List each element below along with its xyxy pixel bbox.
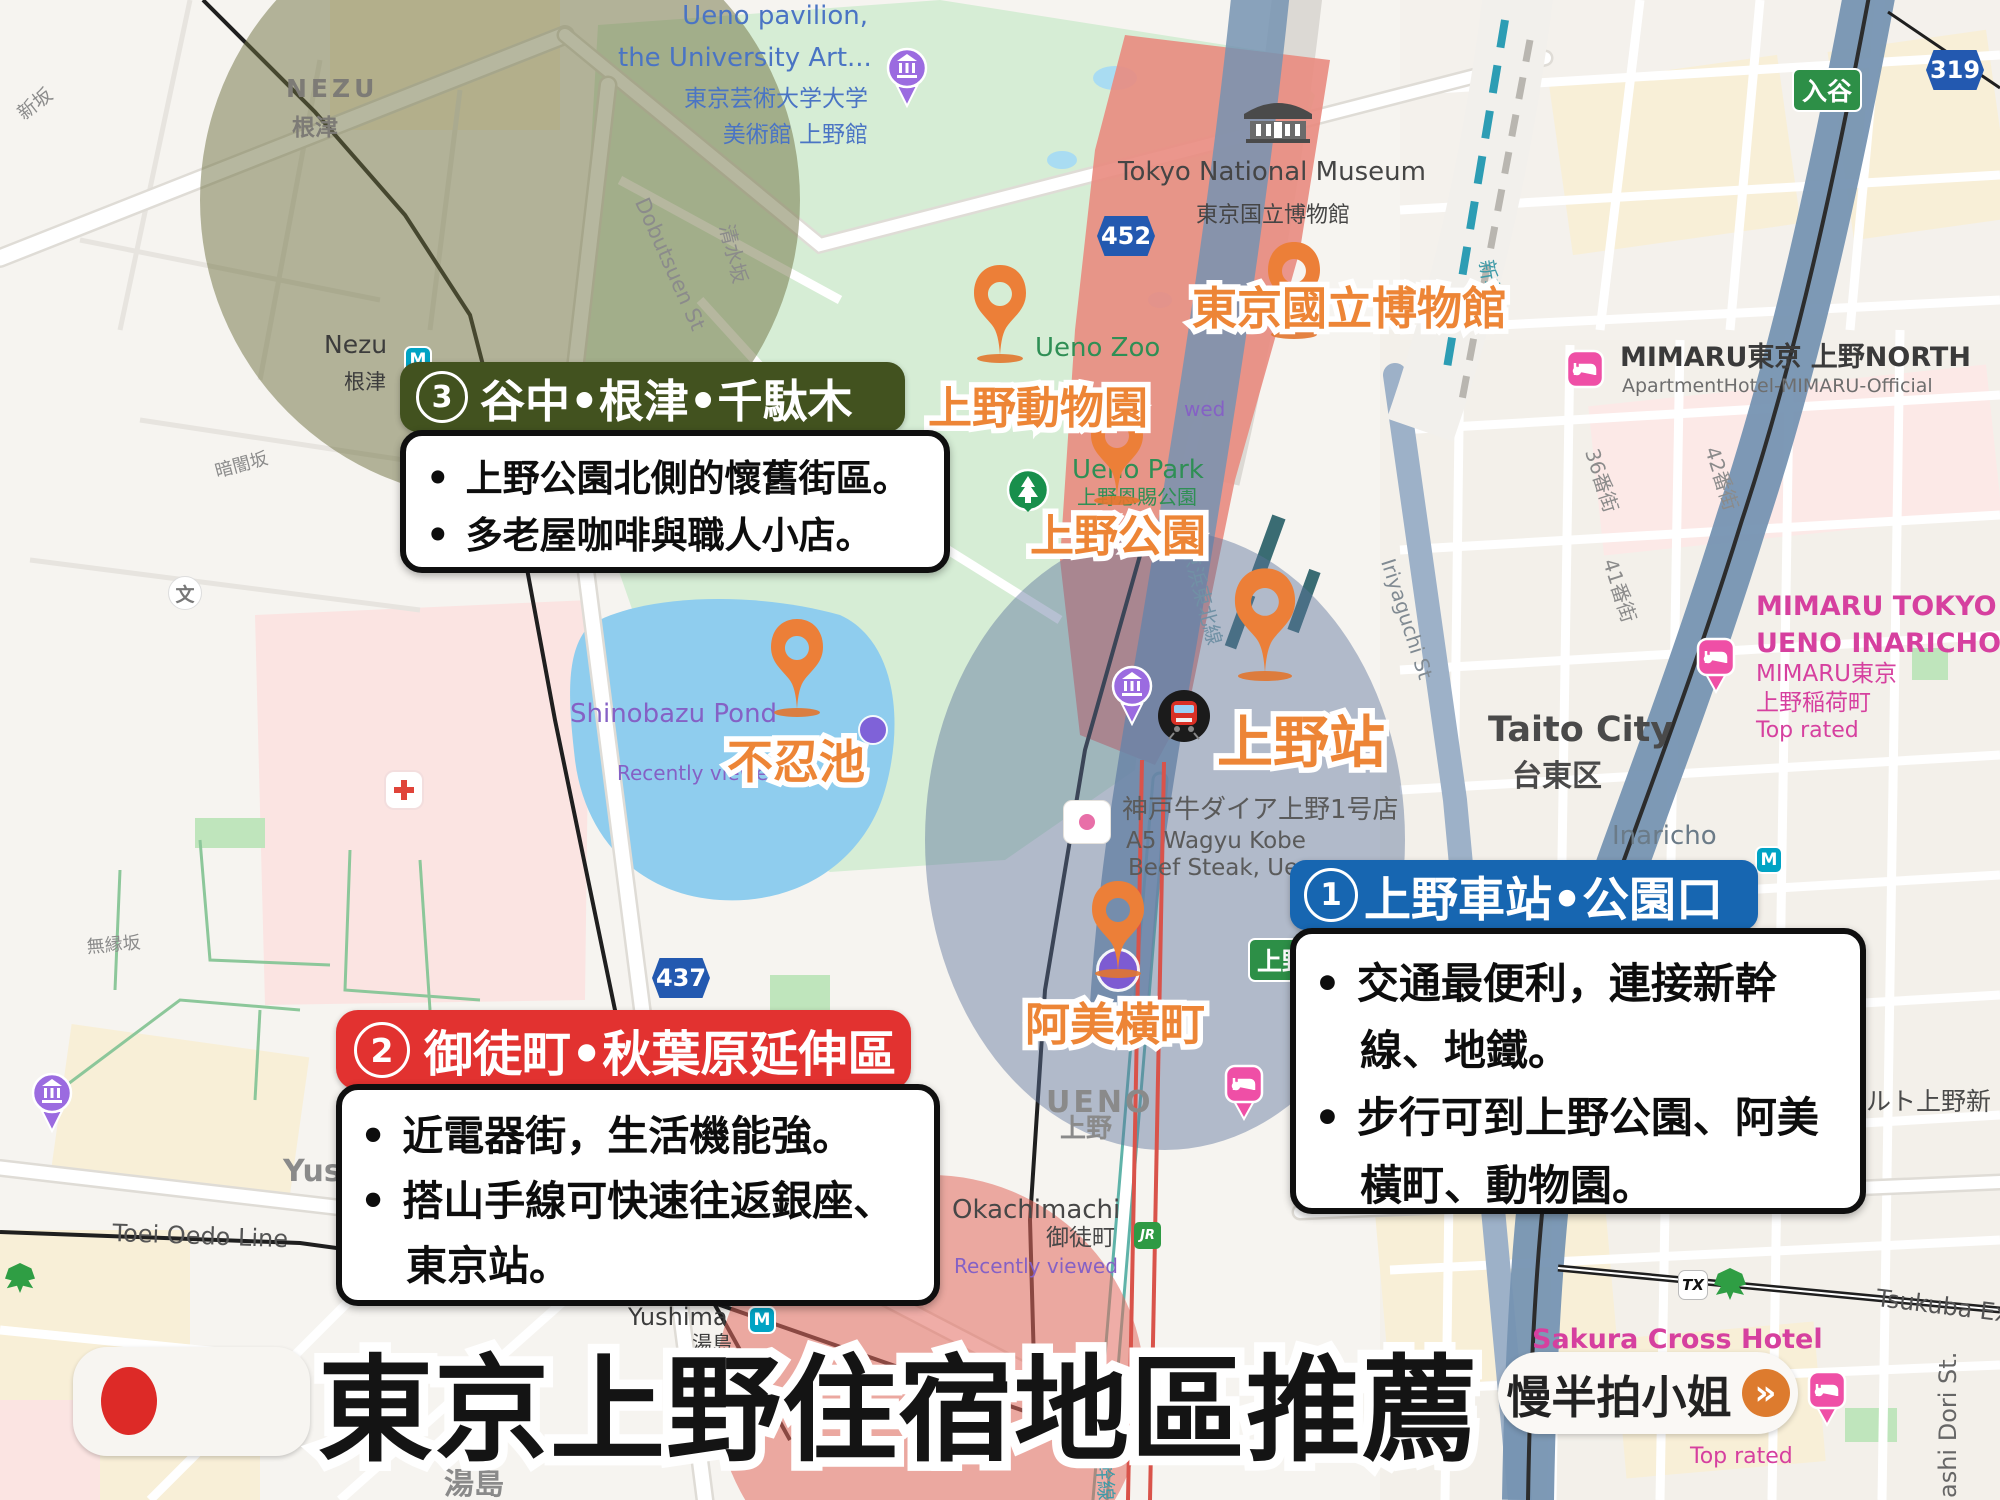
- poi-label-pavilion-3[interactable]: 東京芸術大学大学: [618, 86, 868, 112]
- museum-pin-icon[interactable]: [1109, 664, 1155, 726]
- chevron-right-icon: »: [1742, 1369, 1790, 1417]
- map-pin-shinobazu-pond[interactable]: [767, 617, 827, 716]
- info-box2-body: 近電器街，生活機能強。 搭山手線可快速往返銀座、東京站。: [336, 1084, 940, 1306]
- museum-pin-icon[interactable]: [29, 1071, 75, 1133]
- poi-label-sakura-rated: Top rated: [1690, 1444, 1793, 1469]
- info-box1-title: 上野車站•公園口: [1364, 861, 1723, 930]
- info-box1-header: 1 上野車站•公園口: [1290, 860, 1758, 930]
- area-label-taito-jp: 台東区: [1512, 760, 1602, 795]
- badge-1: 1: [1304, 868, 1358, 922]
- poi-label-tnm-en[interactable]: Tokyo National Museum: [1118, 158, 1426, 188]
- poi-label-pavilion-4[interactable]: 美術館 上野館: [618, 122, 868, 148]
- badge-2: 2: [354, 1022, 410, 1078]
- museum-pin-icon[interactable]: [884, 46, 930, 108]
- watermark-pill: 慢半拍小姐 »: [1498, 1352, 1798, 1434]
- poi-label-mimaru-north[interactable]: MIMARU東京 上野NORTH: [1620, 342, 1971, 373]
- info-box1-bullet: 交通最便利，連接新幹線、地鐵。: [1314, 950, 1842, 1084]
- poi-label-wagyu-1[interactable]: 神戸牛ダイア上野1号店: [1122, 796, 1399, 826]
- route-shield-319: 319: [1926, 50, 1984, 90]
- poi-label-mimaru-inaricho-4: 上野稲荷町: [1756, 690, 1871, 716]
- tx-icon[interactable]: TX: [1678, 1270, 1708, 1300]
- highlight-label-ameyoko[interactable]: 阿美橫町: [1025, 988, 1205, 1053]
- info-box2-title: 御徒町•秋葉原延伸區: [424, 1015, 896, 1086]
- highlight-label-park[interactable]: 上野公園: [1030, 500, 1206, 564]
- area-label-taito-en: Taito City: [1488, 710, 1673, 750]
- hotel-pin-icon[interactable]: [1805, 1369, 1849, 1427]
- map-pin-ameyoko[interactable]: [1088, 879, 1148, 978]
- poi-label-sakura-hotel[interactable]: Sakura Cross Hotel: [1532, 1324, 1823, 1355]
- map-pin-ueno-zoo[interactable]: [970, 263, 1030, 362]
- info-box3-bullet: 多老屋咖啡與職人小店。: [426, 507, 924, 564]
- poi-label-mimaru-inaricho-1[interactable]: MIMARU TOKYO: [1756, 591, 1997, 622]
- info-box3-header: 3 谷中•根津•千駄木: [400, 362, 905, 432]
- map-pin-ueno-station[interactable]: [1229, 566, 1301, 680]
- poi-label-pavilion-2[interactable]: the University Art...: [618, 44, 868, 74]
- info-box3-body: 上野公園北側的懷舊街區。 多老屋咖啡與職人小店。: [400, 430, 950, 573]
- poi-label-mimaru-inaricho-3: MIMARU東京: [1756, 661, 1897, 687]
- highlight-label-pond[interactable]: 不忍池: [727, 726, 865, 792]
- japan-flag-badge: [73, 1347, 310, 1456]
- poi-label-wagyu-3: Beef Steak, Uen: [1128, 855, 1313, 881]
- poi-label-tnm-jp[interactable]: 東京国立博物館: [1196, 203, 1350, 228]
- page-title: 東京上野住宿地區推薦: [318, 1318, 1478, 1484]
- hotel-icon[interactable]: [1564, 348, 1606, 394]
- area-label-nezu-en: NEZU: [286, 75, 378, 104]
- poi-label-mimaru-north-sub: ApartmentHotel-MIMARU-Official: [1622, 376, 1933, 398]
- poi-label-mimaru-inaricho-2[interactable]: UENO INARICHO: [1756, 628, 2000, 659]
- red-dot-icon: [101, 1367, 157, 1435]
- info-box2-header: 2 御徒町•秋葉原延伸區: [336, 1010, 911, 1090]
- station-label-okachimachi-jp[interactable]: 御徒町: [1046, 1225, 1115, 1251]
- poi-label-ueno-zoo[interactable]: Ueno Zoo: [1035, 334, 1160, 364]
- station-label-nezu-jp[interactable]: 根津: [344, 370, 386, 394]
- hospital-icon[interactable]: [386, 772, 422, 808]
- watermark-text: 慢半拍小姐: [1506, 1361, 1731, 1426]
- highlight-label-zoo[interactable]: 上野動物園: [928, 372, 1148, 436]
- map-infographic: NEZU 根津 Nezu 根津 新坂 暗闇坂 無縁坂 Dobutsuen St …: [0, 0, 2000, 1500]
- info-box1-bullet: 步行可到上野公園、阿美橫町、動物園。: [1314, 1084, 1842, 1218]
- area-label-inaricho: Inaricho: [1612, 822, 1717, 852]
- info-box3-title: 谷中•根津•千駄木: [480, 365, 853, 430]
- info-box1-body: 交通最便利，連接新幹線、地鐵。 步行可到上野公園、阿美橫町、動物園。: [1290, 928, 1866, 1214]
- info-box2-bullet: 搭山手線可快速往返銀座、東京站。: [360, 1169, 916, 1299]
- museum-building-icon: [1238, 92, 1318, 146]
- area-label-ueno-jp: 上野: [1060, 1115, 1112, 1145]
- station-label-okachimachi-en[interactable]: Okachimachi: [952, 1196, 1120, 1226]
- highlight-label-national-museum[interactable]: 東京國立博物館: [1192, 272, 1507, 337]
- route-shield-437: 437: [652, 958, 710, 998]
- poi-label-mimaru-inaricho-rated: Top rated: [1756, 718, 1859, 743]
- highlight-label-station[interactable]: 上野站: [1217, 698, 1385, 779]
- area-label-yushima-cut: Yus: [283, 1155, 342, 1190]
- restaurant-icon[interactable]: [1063, 800, 1111, 844]
- road-sign-iriya: 入谷: [1792, 68, 1862, 112]
- area-label-nezu-jp: 根津: [292, 115, 338, 141]
- jr-icon[interactable]: JR: [1134, 1222, 1161, 1249]
- poi-label-pavilion-1[interactable]: Ueno pavilion,: [618, 2, 868, 32]
- poi-label-viewed-frag: wed: [1184, 398, 1225, 421]
- road-label-dori-st: ashi Dori St.: [1935, 1352, 1963, 1498]
- school-icon[interactable]: 文: [168, 576, 202, 610]
- badge-3: 3: [416, 371, 468, 423]
- hotel-pin-icon[interactable]: [1222, 1063, 1266, 1121]
- route-shield-452: 452: [1097, 216, 1155, 256]
- train-station-icon[interactable]: [1157, 689, 1211, 743]
- poi-label-wagyu-2: A5 Wagyu Kobe: [1126, 828, 1306, 854]
- metro-icon[interactable]: M: [1755, 846, 1783, 874]
- station-label-nezu-en[interactable]: Nezu: [324, 331, 387, 360]
- info-box2-bullet: 近電器街，生活機能強。: [360, 1104, 916, 1169]
- info-box3-bullet: 上野公園北側的懷舊街區。: [426, 450, 924, 507]
- hotel-pin-icon[interactable]: [1694, 636, 1738, 694]
- poi-label-ru-frag: ルト上野新: [1866, 1088, 1991, 1117]
- poi-label-okachimachi-viewed: Recently viewed: [954, 1255, 1118, 1278]
